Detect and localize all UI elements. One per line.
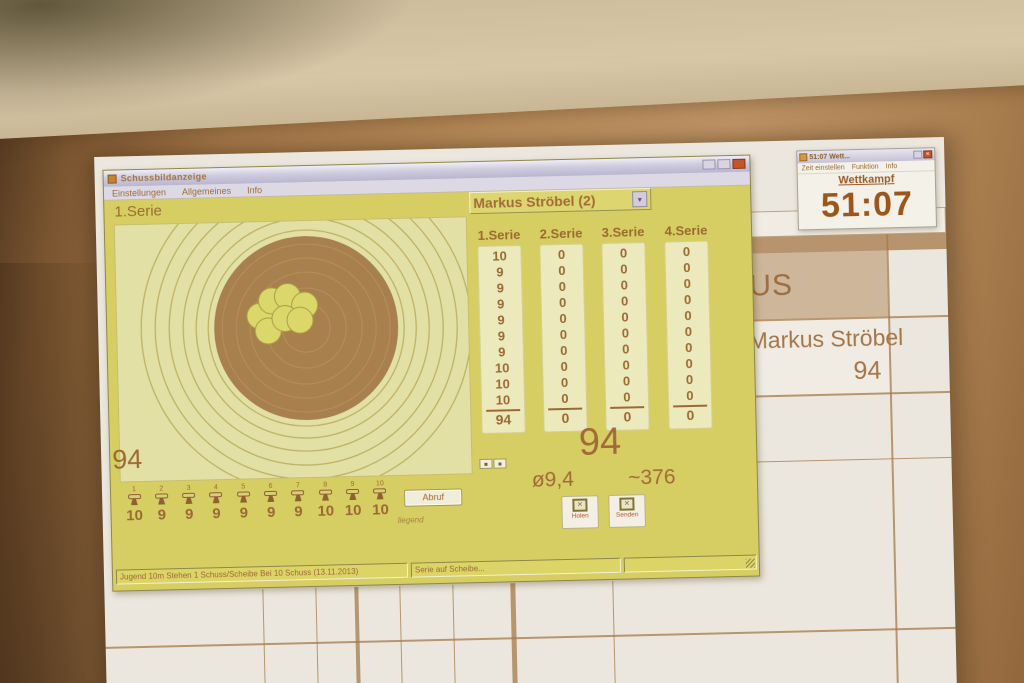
- shot-ring-value: 9: [212, 505, 221, 522]
- shot-target-icon[interactable]: [182, 492, 195, 505]
- grid-line: [452, 585, 457, 683]
- series-sum: 0: [686, 407, 694, 423]
- shot-nav: [479, 458, 506, 469]
- target-panel: [114, 216, 473, 482]
- shot-ring-value: 9: [158, 506, 167, 523]
- target-icon: [572, 498, 587, 511]
- series-column-2: 0 0 0 0 0 0 0 0 0 0 0: [539, 244, 587, 433]
- grid-line: [510, 583, 519, 683]
- series-column-4: 0 0 0 0 0 0 0 0 0 0 0: [664, 241, 712, 430]
- average-score: ø9,4: [514, 467, 593, 493]
- scoreboard-header-partial: US: [749, 269, 793, 304]
- player-select[interactable]: Markus Ströbel (2): [469, 188, 651, 214]
- total-score: 94: [539, 420, 660, 466]
- abruf-button[interactable]: Abruf: [404, 488, 462, 506]
- shot-value: 0: [684, 292, 692, 308]
- window-title: Schussbildanzeige: [121, 171, 207, 183]
- shot-value: 10: [495, 376, 510, 392]
- shot-target-icon[interactable]: [155, 492, 168, 505]
- shot-ring-value: 9: [267, 504, 276, 521]
- shot-value: 0: [685, 356, 693, 372]
- shot-value: 0: [620, 245, 628, 261]
- status-bar-extra: [624, 555, 757, 573]
- scoreboard-shooter-score: 94: [747, 357, 882, 389]
- grid-line: [106, 627, 956, 649]
- shot-value: 0: [622, 341, 630, 357]
- target-score: 94: [112, 444, 143, 476]
- menu-item-allgemeines[interactable]: Allgemeines: [182, 185, 231, 196]
- shot-cell[interactable]: 6 9: [257, 483, 284, 522]
- shot-value: 10: [495, 360, 510, 376]
- timer-menu-info[interactable]: Info: [886, 163, 898, 170]
- shot-value: 0: [559, 295, 567, 311]
- shot-ring-value: 9: [294, 503, 303, 520]
- shot-target-icon[interactable]: [210, 491, 223, 504]
- shot-cell[interactable]: 8 10: [312, 481, 339, 520]
- timer-menu-funktion[interactable]: Funktion: [852, 163, 879, 171]
- grid-line: [315, 588, 320, 683]
- shot-cell[interactable]: 7 9: [285, 482, 312, 521]
- shot-value: 0: [558, 247, 566, 263]
- series-column-3: 0 0 0 0 0 0 0 0 0 0 0: [601, 242, 649, 431]
- shot-value: 0: [686, 388, 694, 404]
- shot-strip: 1 10 2 9 3 9 4 9: [121, 480, 394, 524]
- shot-cell[interactable]: 3 9: [176, 485, 203, 524]
- shot-ring-value: 10: [345, 502, 362, 519]
- shot-value: 9: [498, 328, 506, 344]
- resize-grip[interactable]: [746, 559, 755, 568]
- timer-menu-zeit-einstellen[interactable]: Zeit einstellen: [801, 164, 844, 172]
- shot-value: 0: [683, 244, 691, 260]
- shot-value: 10: [496, 392, 511, 408]
- series-column-1: 10 9 9 9 9 9 9 10 10 10 94: [477, 245, 525, 434]
- shot-value: 0: [621, 309, 629, 325]
- status-bar-right: Serie auf Scheibe...: [411, 558, 621, 578]
- series-sum: 94: [495, 411, 511, 427]
- grid-line: [262, 589, 267, 683]
- shot-cell[interactable]: 2 9: [148, 485, 175, 524]
- menu-item-info[interactable]: Info: [247, 185, 262, 195]
- shot-target-icon[interactable]: [319, 489, 332, 502]
- series-header: 4.Serie: [657, 222, 715, 238]
- target-svg: [115, 217, 473, 482]
- shot-cell[interactable]: 4 9: [203, 484, 230, 523]
- shot-value: 0: [623, 373, 631, 389]
- player-select-value: Markus Ströbel (2): [473, 192, 595, 211]
- series-header: 3.Serie: [594, 224, 652, 240]
- timer-window: 51:07 Wett... Zeit einstellen Funktion I…: [796, 147, 937, 230]
- shot-ring-value: 10: [372, 501, 389, 518]
- projection-screen: US Markus Ströbel 94 Schussbildanzeige: [94, 137, 958, 683]
- shot-value: 0: [560, 359, 568, 375]
- shot-ring-value: 9: [185, 506, 194, 523]
- timer-window-buttons: [913, 150, 932, 158]
- shot-value: 0: [685, 324, 693, 340]
- shot-value: 0: [684, 308, 692, 324]
- next-shot-button[interactable]: [493, 458, 506, 468]
- shot-target-icon[interactable]: [237, 490, 250, 503]
- shot-value: 9: [498, 344, 506, 360]
- shot-value: 9: [497, 280, 505, 296]
- holen-button[interactable]: Holen: [561, 495, 599, 529]
- timer-close-icon[interactable]: [923, 150, 932, 158]
- shot-value: 0: [560, 327, 568, 343]
- senden-button[interactable]: Senden: [608, 494, 646, 528]
- shot-value: 0: [558, 279, 566, 295]
- shot-value: 0: [561, 375, 569, 391]
- shot-value: 0: [683, 276, 691, 292]
- holen-label: Holen: [572, 512, 589, 519]
- shot-ring-value: 10: [126, 507, 143, 524]
- shot-target-icon[interactable]: [264, 490, 277, 503]
- shot-value: 0: [559, 311, 567, 327]
- shot-cell[interactable]: 5 9: [230, 483, 257, 522]
- shot-target-icon[interactable]: [291, 489, 304, 502]
- photo: US Markus Ströbel 94 Schussbildanzeige: [0, 0, 1024, 683]
- shot-target-icon[interactable]: [373, 487, 386, 500]
- grid-line: [749, 457, 951, 463]
- window-buttons: [702, 159, 745, 170]
- series-header: 1.Serie: [470, 227, 528, 243]
- menu-item-einstellungen[interactable]: Einstellungen: [112, 187, 166, 198]
- shot-value: 0: [685, 340, 693, 356]
- shot-cell[interactable]: 1 10: [121, 486, 148, 525]
- minimize-button[interactable]: [702, 159, 715, 169]
- scoreboard-shooter-name: Markus Ströbel: [748, 324, 889, 354]
- shot-value: 0: [560, 343, 568, 359]
- shot-display-window: Schussbildanzeige Einstellungen Allgemei…: [102, 155, 760, 592]
- shot-target-icon[interactable]: [346, 488, 359, 501]
- position-note: liegend: [398, 515, 424, 525]
- prev-shot-button[interactable]: [479, 459, 492, 469]
- grid-line: [612, 581, 617, 683]
- target-icon: [619, 497, 634, 510]
- timer-app-icon: [799, 153, 807, 161]
- serie-label: 1.Serie: [114, 202, 162, 220]
- status-bar-left: Jugend 10m Stehen 1 Schuss/Scheibe Bei 1…: [116, 563, 408, 585]
- shot-value: 0: [558, 263, 566, 279]
- shot-value: 9: [497, 312, 505, 328]
- shot-value: 0: [683, 260, 691, 276]
- shot-value: 0: [561, 391, 569, 407]
- shot-target-icon[interactable]: [128, 493, 141, 506]
- grid-line: [399, 586, 404, 683]
- timer-countdown: 51:07: [798, 184, 936, 225]
- shot-hole: [287, 307, 314, 334]
- shot-value: 0: [623, 389, 631, 405]
- close-icon[interactable]: [732, 159, 745, 169]
- target-rings: [137, 217, 472, 482]
- chevron-down-icon[interactable]: [632, 191, 647, 207]
- maximize-button[interactable]: [717, 159, 730, 169]
- series-header: 2.Serie: [532, 225, 590, 241]
- shot-cell[interactable]: 9 10: [339, 481, 366, 520]
- shot-value: 0: [622, 325, 630, 341]
- senden-label: Senden: [616, 511, 639, 519]
- shot-value: 0: [620, 261, 628, 277]
- shot-value: 9: [497, 296, 505, 312]
- shot-ring-value: 10: [317, 502, 334, 519]
- shot-value: 10: [492, 248, 507, 264]
- shot-value: 0: [620, 277, 628, 293]
- shot-value: 0: [621, 293, 629, 309]
- deviation-value: ~376: [611, 465, 694, 491]
- shot-value: 9: [496, 264, 504, 280]
- app-icon: [108, 174, 117, 183]
- timer-title: 51:07 Wett...: [809, 153, 850, 161]
- shot-ring-value: 9: [239, 504, 248, 521]
- shot-value: 0: [622, 357, 630, 373]
- grid-line: [354, 587, 362, 683]
- shot-value: 0: [686, 372, 694, 388]
- shot-cell[interactable]: 10 10: [367, 480, 394, 519]
- timer-minimize-button[interactable]: [913, 151, 922, 159]
